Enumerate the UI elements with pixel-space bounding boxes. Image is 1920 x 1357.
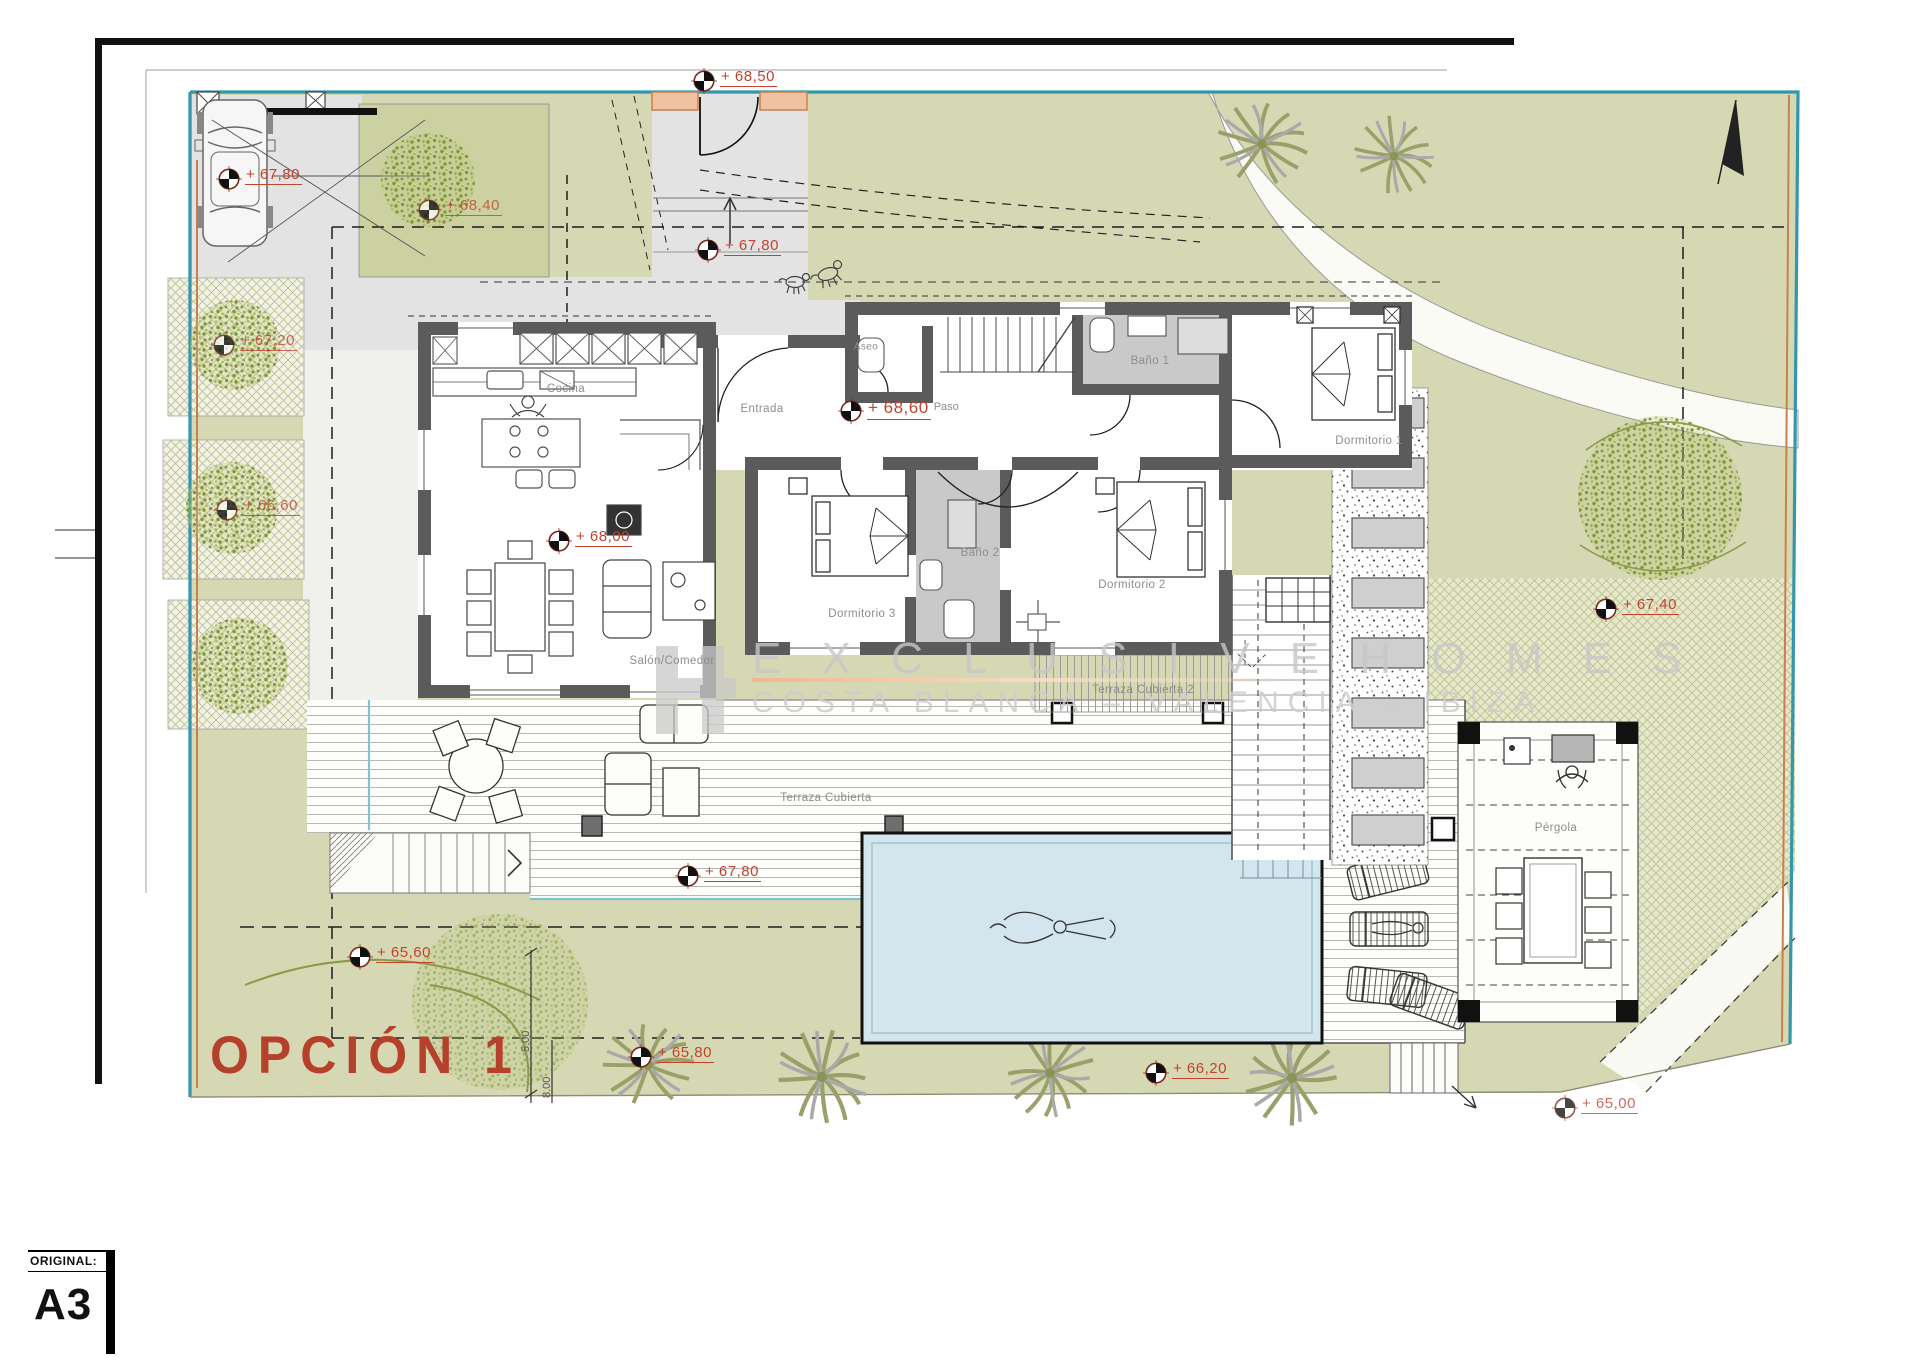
- level-marker-entry-path: + 67,80: [695, 237, 781, 263]
- benchmark-icon: [416, 197, 442, 223]
- level-marker-paso: + 68,60 Paso: [838, 398, 959, 424]
- margin-ticks: [55, 530, 97, 558]
- sheet-frame-top: [95, 38, 1514, 45]
- room-label-bano2: Baño 2: [961, 547, 1000, 559]
- benchmark-icon: [211, 332, 237, 358]
- room-label-terraza2: Terraza Cubierta 2: [1092, 684, 1194, 696]
- level-marker-garden-w2: + 66,60: [214, 497, 300, 523]
- level-marker-garden-s: + 65,80: [628, 1044, 714, 1070]
- benchmark-icon: [216, 166, 242, 192]
- room-label-dormitorio2: Dormitorio 2: [1098, 579, 1165, 591]
- level-marker-terraza: + 67,80: [675, 863, 761, 889]
- room-label-bano1: Baño 1: [1131, 355, 1170, 367]
- level-marker-gate: + 68,50: [691, 68, 777, 94]
- tree: [192, 618, 288, 714]
- level-marker-tree-north: + 68,40: [416, 197, 502, 223]
- dimension-8m: 8.00: [541, 1077, 553, 1098]
- plan-title: OPCIÓN 1: [210, 1024, 521, 1085]
- room-label-pergola: Pérgola: [1535, 822, 1577, 834]
- room-label-aseo: Aseo: [854, 342, 878, 353]
- benchmark-icon: [838, 398, 864, 424]
- sheet-frame-left: [95, 38, 102, 1084]
- plan-sheet: E X C L U S I V E H O M E S COSTA BLANCA…: [0, 0, 1920, 1357]
- pergola-structure: [1458, 722, 1638, 1022]
- pool: [862, 833, 1322, 1043]
- format-value: A3: [28, 1272, 106, 1330]
- benchmark-icon: [695, 237, 721, 263]
- room-label-dormitorio3: Dormitorio 3: [828, 608, 895, 620]
- room-label-dormitorio1: Dormitorio 1: [1335, 435, 1402, 447]
- room-label-salon: Salón/Comedor: [629, 655, 714, 667]
- benchmark-icon: [546, 528, 572, 554]
- room-label-terraza: Terraza Cubierta: [780, 792, 871, 804]
- benchmark-icon: [214, 497, 240, 523]
- benchmark-icon: [675, 863, 701, 889]
- benchmark-icon: [347, 944, 373, 970]
- level-marker-salon: + 68,00: [546, 528, 632, 554]
- benchmark-icon: [691, 68, 717, 94]
- benchmark-icon: [628, 1044, 654, 1070]
- stairs-east: [1232, 575, 1330, 860]
- benchmark-icon: [1552, 1095, 1578, 1121]
- room-label-entrada: Entrada: [740, 403, 783, 415]
- sheet-format-block: ORIGINAL: A3: [28, 1250, 115, 1354]
- level-marker-parking: + 67,80: [216, 166, 302, 192]
- site-plan-drawing: [0, 0, 1920, 1357]
- stairs-south-west: [330, 833, 530, 893]
- level-marker-stairs-se: + 65,00: [1552, 1095, 1638, 1121]
- benchmark-icon: [1593, 596, 1619, 622]
- benchmark-icon: [1143, 1060, 1169, 1086]
- level-marker-pool-south: + 66,20: [1143, 1060, 1229, 1086]
- level-marker-garden-w1: + 67,20: [211, 332, 297, 358]
- dimension-5m: 5.00: [520, 1031, 532, 1052]
- room-label-cocina: Cocina: [547, 383, 585, 395]
- level-marker-garden-east: + 67,40: [1593, 596, 1679, 622]
- level-marker-garden-sw: + 65,60: [347, 944, 433, 970]
- original-label: ORIGINAL:: [28, 1252, 106, 1272]
